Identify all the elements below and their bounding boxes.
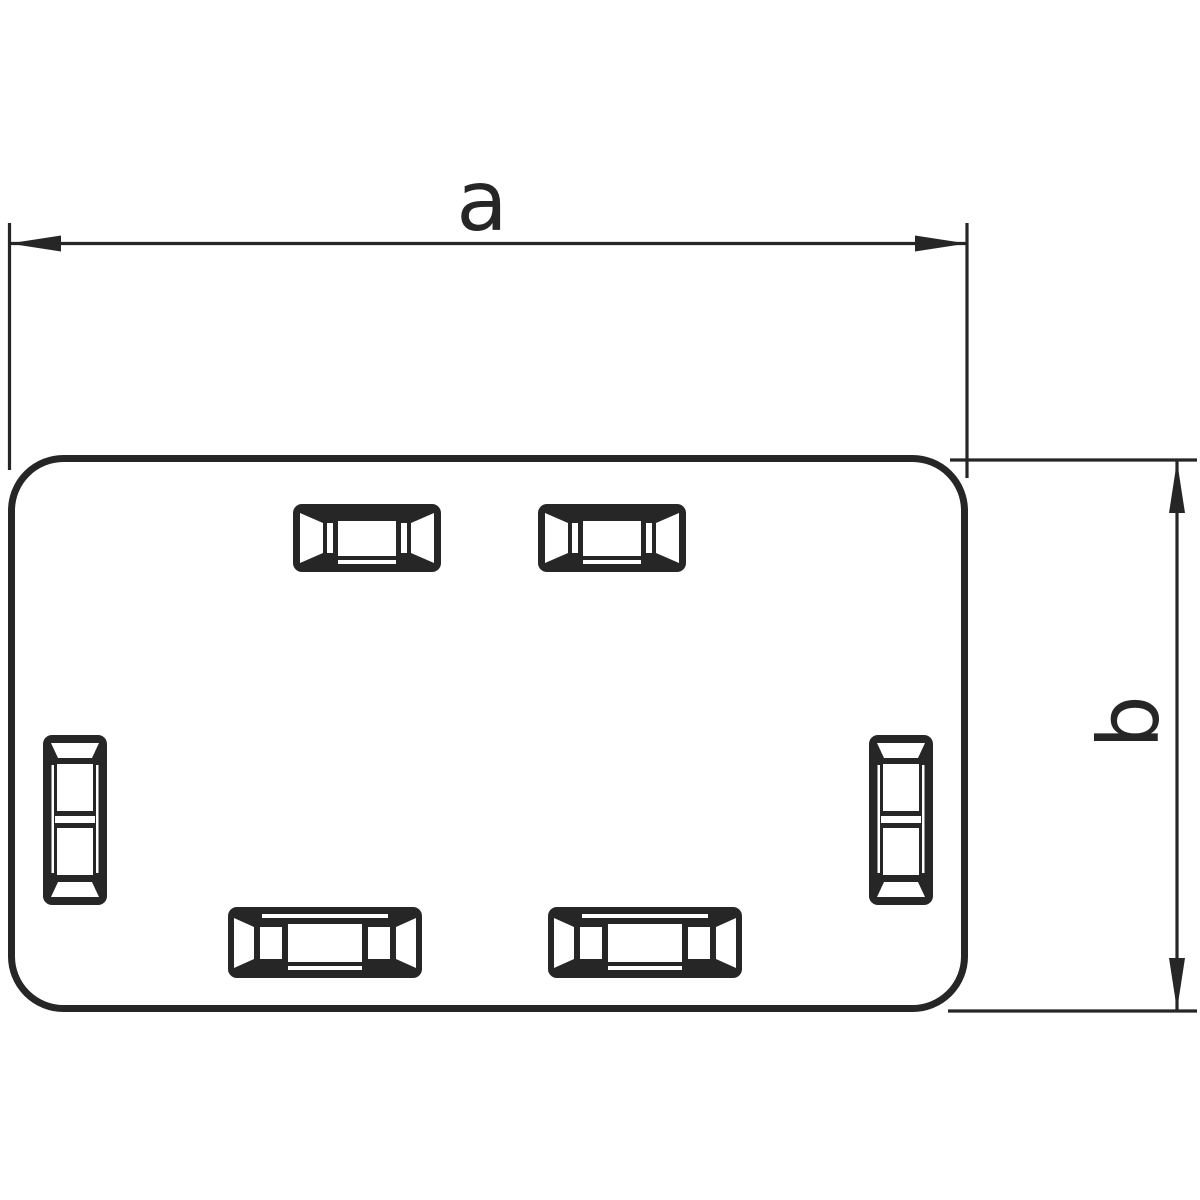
arrowhead-up-icon (1169, 461, 1185, 513)
slot-top-left (293, 504, 441, 572)
slot-top-right (538, 504, 686, 572)
dimension-a: a (9, 152, 967, 478)
part-outline (12, 459, 965, 1009)
slot-right-side (869, 735, 933, 905)
dimension-a-label: a (456, 152, 507, 250)
slot-left-side (43, 735, 107, 905)
drawing-area: a b (0, 0, 1200, 1200)
dimension-b: b (948, 460, 1197, 1011)
part-view (12, 459, 965, 1009)
slot-bottom-right (548, 907, 742, 978)
dimension-b-label: b (1080, 695, 1178, 748)
technical-drawing-canvas: a b (0, 0, 1200, 1200)
slot-bottom-left (228, 907, 422, 978)
arrowhead-right-icon (915, 236, 967, 252)
arrowhead-down-icon (1169, 958, 1185, 1010)
arrowhead-left-icon (9, 236, 61, 252)
